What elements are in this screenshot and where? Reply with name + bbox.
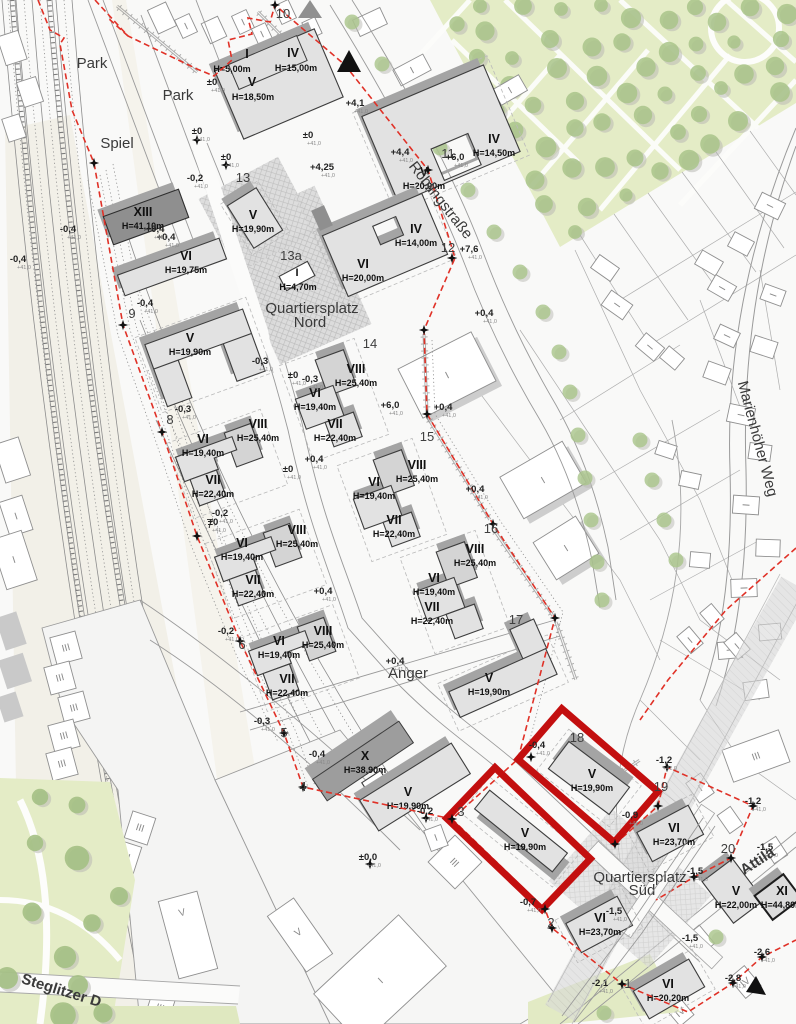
svg-text:+0,4: +0,4 xyxy=(314,586,333,597)
svg-text:+41,0: +41,0 xyxy=(307,141,321,147)
svg-text:-0,2: -0,2 xyxy=(187,173,203,184)
svg-text:+41,0: +41,0 xyxy=(689,944,703,950)
svg-text:+41,0: +41,0 xyxy=(474,495,488,501)
svg-text:+41,0: +41,0 xyxy=(321,173,335,179)
svg-text:H=25,40m: H=25,40m xyxy=(276,539,318,549)
svg-text:20: 20 xyxy=(721,841,735,856)
svg-text:H=19,40m: H=19,40m xyxy=(258,650,300,660)
svg-text:±0,0: ±0,0 xyxy=(359,852,377,863)
svg-text:VI: VI xyxy=(236,536,248,550)
svg-text:±0: ±0 xyxy=(208,517,219,528)
svg-text:IV: IV xyxy=(488,132,500,146)
svg-text:+41,0: +41,0 xyxy=(292,381,306,387)
svg-text:18: 18 xyxy=(570,730,584,745)
svg-text:-1,2: -1,2 xyxy=(745,796,761,807)
svg-text:VII: VII xyxy=(245,573,260,587)
svg-text:2: 2 xyxy=(547,915,554,930)
svg-text:14: 14 xyxy=(363,336,377,351)
svg-text:H=19,90m: H=19,90m xyxy=(232,224,274,234)
svg-text:15: 15 xyxy=(420,429,434,444)
svg-text:-0,3: -0,3 xyxy=(254,716,270,727)
svg-text:H=19,40m: H=19,40m xyxy=(413,587,455,597)
svg-text:+41,0: +41,0 xyxy=(225,163,239,169)
svg-text:V: V xyxy=(521,826,530,840)
svg-text:-0,2: -0,2 xyxy=(417,806,433,817)
svg-text:+41,0: +41,0 xyxy=(354,109,368,115)
svg-text:VI: VI xyxy=(368,475,380,489)
svg-text:I: I xyxy=(295,267,298,279)
svg-text:H=19,90m: H=19,90m xyxy=(504,842,546,852)
svg-text:VIII: VIII xyxy=(288,523,307,537)
svg-text:H=20,20m: H=20,20m xyxy=(647,993,689,1003)
svg-text:+4,4: +4,4 xyxy=(391,147,410,158)
svg-text:+41,0: +41,0 xyxy=(442,413,456,419)
svg-text:+6,0: +6,0 xyxy=(446,152,465,163)
svg-text:-1,2: -1,2 xyxy=(656,755,672,766)
svg-text:-0,3: -0,3 xyxy=(252,356,268,367)
svg-text:V: V xyxy=(249,208,258,222)
svg-text:XIII: XIII xyxy=(134,205,153,219)
svg-text:+41,0: +41,0 xyxy=(144,309,158,315)
svg-text:H=44,80m: H=44,80m xyxy=(761,900,796,910)
svg-text:VI: VI xyxy=(594,911,606,925)
svg-text:H=22,00m: H=22,00m xyxy=(715,900,757,910)
svg-text:+0,4: +0,4 xyxy=(305,454,324,465)
svg-text:VIII: VIII xyxy=(347,362,366,376)
svg-text:Süd: Süd xyxy=(629,882,656,899)
svg-text:VI: VI xyxy=(662,977,674,991)
svg-text:Park: Park xyxy=(163,87,194,104)
svg-text:VII: VII xyxy=(327,417,342,431)
svg-text:19: 19 xyxy=(654,779,668,794)
svg-text:-0,4: -0,4 xyxy=(10,254,27,265)
svg-text:+41,0: +41,0 xyxy=(259,367,273,373)
svg-text:1: 1 xyxy=(624,976,631,991)
svg-text:+6,0: +6,0 xyxy=(381,400,400,411)
svg-text:17: 17 xyxy=(509,612,523,627)
svg-text:+41,0: +41,0 xyxy=(194,184,208,190)
svg-text:H=25,40m: H=25,40m xyxy=(396,474,438,484)
svg-text:+41,0: +41,0 xyxy=(313,465,327,471)
svg-text:+41,0: +41,0 xyxy=(67,235,81,241)
svg-text:16: 16 xyxy=(484,521,498,536)
svg-text:-1,5: -1,5 xyxy=(606,906,623,917)
svg-text:±0: ±0 xyxy=(283,464,294,475)
svg-text:VI: VI xyxy=(197,432,209,446)
svg-text:H=22,40m: H=22,40m xyxy=(314,433,356,443)
svg-text:H=22,40m: H=22,40m xyxy=(373,529,415,539)
svg-text:±0: ±0 xyxy=(192,126,203,137)
svg-text:+41,0: +41,0 xyxy=(663,766,677,772)
svg-text:H=22,40m: H=22,40m xyxy=(192,489,234,499)
svg-text:+41,0: +41,0 xyxy=(211,88,225,94)
svg-text:Spiel: Spiel xyxy=(100,135,133,152)
svg-text:-0,4: -0,4 xyxy=(137,298,154,309)
svg-text:±0: ±0 xyxy=(207,77,218,88)
svg-text:3: 3 xyxy=(457,804,464,819)
svg-text:+41,0: +41,0 xyxy=(536,751,550,757)
svg-text:±0: ±0 xyxy=(221,152,232,163)
svg-text:H=19,90m: H=19,90m xyxy=(468,687,510,697)
svg-text:+41,0: +41,0 xyxy=(761,958,775,964)
svg-text:+41,0: +41,0 xyxy=(316,760,330,766)
svg-text:V: V xyxy=(588,767,597,781)
svg-text:+41,0: +41,0 xyxy=(389,411,403,417)
svg-text:H=25,40m: H=25,40m xyxy=(302,640,344,650)
svg-text:+41,0: +41,0 xyxy=(309,385,323,391)
svg-text:H=23,70m: H=23,70m xyxy=(579,927,621,937)
svg-text:+0,4: +0,4 xyxy=(434,402,453,413)
svg-text:VII: VII xyxy=(205,473,220,487)
svg-text:+41,0: +41,0 xyxy=(752,807,766,813)
svg-text:Park: Park xyxy=(77,55,108,72)
svg-text:+41,0: +41,0 xyxy=(367,863,381,869)
svg-text:±0: ±0 xyxy=(303,130,314,141)
svg-text:Anger: Anger xyxy=(388,665,428,682)
svg-text:IV: IV xyxy=(410,222,422,236)
svg-text:4: 4 xyxy=(299,779,306,794)
svg-text:X: X xyxy=(361,749,370,763)
svg-text:+41,0: +41,0 xyxy=(182,415,196,421)
svg-text:+41,0: +41,0 xyxy=(17,265,31,271)
svg-text:VII: VII xyxy=(279,672,294,686)
svg-text:+7,6: +7,6 xyxy=(460,244,479,255)
svg-text:H=25,40m: H=25,40m xyxy=(335,378,377,388)
svg-text:H=19,40m: H=19,40m xyxy=(221,552,263,562)
svg-text:V: V xyxy=(485,671,494,685)
svg-text:+0,4: +0,4 xyxy=(466,484,485,495)
svg-text:H=19,40m: H=19,40m xyxy=(353,491,395,501)
svg-text:+41,0: +41,0 xyxy=(468,255,482,261)
svg-text:+41,0: +41,0 xyxy=(196,137,210,143)
svg-text:+41,0: +41,0 xyxy=(287,475,301,481)
svg-text:+41,0: +41,0 xyxy=(322,597,336,603)
svg-text:H=5,00m: H=5,00m xyxy=(213,64,250,74)
svg-text:VII: VII xyxy=(386,513,401,527)
svg-text:I: I xyxy=(245,47,248,61)
svg-text:+41,0: +41,0 xyxy=(165,243,179,249)
svg-text:V: V xyxy=(732,884,741,898)
svg-text:8: 8 xyxy=(166,412,173,427)
svg-text:+41,0: +41,0 xyxy=(261,727,275,733)
svg-text:±0: ±0 xyxy=(288,370,299,381)
svg-text:V: V xyxy=(248,75,257,89)
svg-text:Nord: Nord xyxy=(294,314,327,331)
svg-text:+41,0: +41,0 xyxy=(483,319,497,325)
svg-text:H=22,40m: H=22,40m xyxy=(232,589,274,599)
svg-text:+41,0: +41,0 xyxy=(694,877,708,883)
svg-text:+0,4: +0,4 xyxy=(475,308,494,319)
svg-text:VIII: VIII xyxy=(314,624,333,638)
svg-text:VIII: VIII xyxy=(466,542,485,556)
svg-text:H=20,00m: H=20,00m xyxy=(342,273,384,283)
svg-text:9: 9 xyxy=(128,306,135,321)
svg-text:V: V xyxy=(404,785,413,799)
svg-text:VII: VII xyxy=(424,600,439,614)
svg-text:+41,0: +41,0 xyxy=(424,817,438,823)
svg-text:+41,0: +41,0 xyxy=(527,908,541,914)
svg-text:VIII: VIII xyxy=(249,417,268,431)
svg-text:12: 12 xyxy=(441,240,455,255)
svg-text:-0,9: -0,9 xyxy=(622,810,638,821)
svg-text:-0,4: -0,4 xyxy=(60,224,77,235)
svg-text:+41,0: +41,0 xyxy=(732,984,746,990)
svg-text:+41,0: +41,0 xyxy=(613,917,627,923)
svg-text:13: 13 xyxy=(236,170,250,185)
svg-text:VI: VI xyxy=(428,571,440,585)
svg-text:+41,0: +41,0 xyxy=(454,163,468,169)
svg-text:H=19,90m: H=19,90m xyxy=(571,783,613,793)
svg-text:+41,0: +41,0 xyxy=(225,637,239,643)
svg-text:VI: VI xyxy=(273,634,285,648)
svg-text:+41,0: +41,0 xyxy=(629,821,643,827)
svg-text:H=25,40m: H=25,40m xyxy=(237,433,279,443)
svg-text:+41,0: +41,0 xyxy=(154,235,168,241)
svg-text:-0,4: -0,4 xyxy=(529,740,546,751)
svg-text:13a: 13a xyxy=(280,248,302,263)
svg-text:H=19,40m: H=19,40m xyxy=(294,402,336,412)
svg-text:-0,3: -0,3 xyxy=(175,404,191,415)
svg-text:XI: XI xyxy=(776,884,788,898)
svg-text:5: 5 xyxy=(280,725,287,740)
svg-text:VI: VI xyxy=(180,249,192,263)
svg-text:V: V xyxy=(186,331,195,345)
svg-text:VI: VI xyxy=(668,821,680,835)
svg-text:+4,1: +4,1 xyxy=(346,98,365,109)
svg-text:H=22,40m: H=22,40m xyxy=(266,688,308,698)
svg-text:+4,25: +4,25 xyxy=(310,162,335,173)
svg-text:IV: IV xyxy=(287,46,299,60)
svg-text:H=19,40m: H=19,40m xyxy=(182,448,224,458)
svg-text:H=4,70m: H=4,70m xyxy=(279,282,316,292)
svg-text:VI: VI xyxy=(357,257,369,271)
svg-text:-2,8: -2,8 xyxy=(725,973,741,984)
svg-text:-2,6: -2,6 xyxy=(754,947,770,958)
svg-text:+41,0: +41,0 xyxy=(599,989,613,995)
svg-text:+41,0: +41,0 xyxy=(212,528,226,534)
svg-text:H=19,90m: H=19,90m xyxy=(169,347,211,357)
svg-text:-0,4: -0,4 xyxy=(309,749,326,760)
svg-text:H=15,00m: H=15,00m xyxy=(275,63,317,73)
svg-text:H=19,75m: H=19,75m xyxy=(165,265,207,275)
svg-text:H=22,40m: H=22,40m xyxy=(411,616,453,626)
svg-text:-1,5: -1,5 xyxy=(687,866,704,877)
svg-text:+41,0: +41,0 xyxy=(219,519,233,525)
svg-text:6: 6 xyxy=(238,637,245,652)
svg-text:10: 10 xyxy=(276,6,290,21)
svg-text:H=18,50m: H=18,50m xyxy=(232,92,274,102)
svg-text:+0,4: +0,4 xyxy=(146,224,165,235)
svg-text:VIII: VIII xyxy=(408,458,427,472)
svg-text:-0,2: -0,2 xyxy=(218,626,234,637)
svg-text:H=14,50m: H=14,50m xyxy=(473,148,515,158)
svg-text:H=14,00m: H=14,00m xyxy=(395,238,437,248)
svg-text:H=25,40m: H=25,40m xyxy=(454,558,496,568)
svg-text:-1,5: -1,5 xyxy=(682,933,699,944)
svg-text:-0,7: -0,7 xyxy=(520,897,536,908)
